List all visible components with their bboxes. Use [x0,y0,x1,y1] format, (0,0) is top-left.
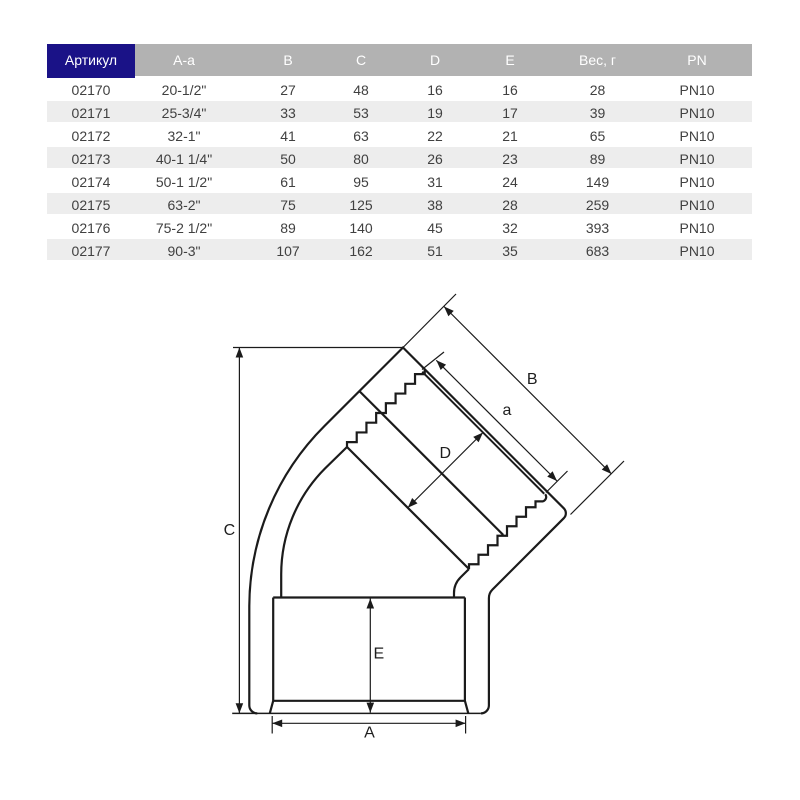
svg-text:E: E [373,646,384,663]
svg-text:B: B [527,371,538,388]
svg-text:A: A [364,724,375,741]
svg-text:C: C [224,522,236,539]
svg-text:D: D [440,445,452,462]
svg-text:a: a [502,402,511,419]
